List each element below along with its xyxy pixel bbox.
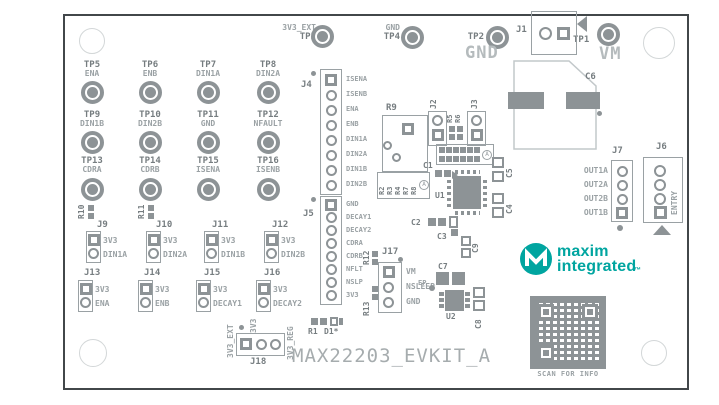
header-pin-square [432,129,444,141]
j1-pin-round [539,27,552,40]
j16-ref-label: J16 [264,269,280,278]
j11-ref-label: J11 [212,221,228,230]
j6-ref-label: J6 [656,143,667,152]
smd-pad [446,156,452,162]
header-pin-round [326,238,337,249]
jumper-net-label: DIN1B [221,251,245,259]
c3-ref-label: C3 [437,233,447,241]
gnd-net-text: GND [465,45,499,62]
u2-ic-body [445,290,464,311]
r11-ref-label: R11 [138,199,146,219]
c1-pad [435,170,442,177]
header-pin-round [326,277,337,288]
j14-ref-label: J14 [144,269,160,278]
c2-pad [428,218,436,226]
jumper-net-label: 3V3 [95,286,109,294]
qr-finder [538,304,554,320]
maxim-logo-icon [519,242,553,276]
tp13-group: TP13 CDRA [68,157,116,205]
header-pin-round [326,180,337,191]
jumper-net-label: 3V3 [213,286,227,294]
testpoint-pad [257,81,280,104]
c6-pad [508,92,544,109]
r5-ref-label: R5 [447,106,454,123]
c9-pad [461,236,471,246]
r9-ref-label: R9 [386,104,397,113]
qr-finder [582,304,598,320]
tp-net-label: NFAULT [244,120,292,128]
smd-pad [467,147,473,153]
c4-pad [492,207,504,218]
tp14-group: TP14 CDRB [126,157,174,205]
jumper-net-label: DIN1A [103,251,127,259]
jumper-pin-square [198,283,210,295]
tp3-net-label: 3V3_EXT [266,24,316,32]
header-pin-round [326,225,337,236]
pin-label: ENA [346,106,359,113]
header-pin-round [326,290,337,301]
jumper-pin-square [258,283,270,295]
r12-pad [372,251,378,257]
jumper-pin-square [206,234,218,246]
tp2-ref-label: TP2 [436,33,484,42]
connector-pin-round [654,179,666,191]
r5-pad [449,126,455,132]
smd-pad [460,147,466,153]
smd-pad [474,147,480,153]
header-pin-round [326,264,337,275]
j18-3v3-label: 3V3 [250,307,258,333]
pin-label: DIN2A [346,151,367,158]
pin1-dot-icon [311,197,316,202]
testpoint-pad [401,26,424,49]
pin-label: 3V3 [346,292,359,299]
testpoint-pad [257,131,280,154]
testpoint-pad [311,25,334,48]
pin-label: GND [346,201,359,208]
jumper-net-label: DIN2B [281,251,305,259]
r10-pad [88,205,94,211]
c7-pad [452,272,465,285]
pin-label: OUT1B [566,209,608,217]
c7-pad [436,272,449,285]
c5-pad [492,157,504,168]
pin-label: OUT2A [566,181,608,189]
mounting-hole [643,27,675,59]
j9-ref-label: J9 [97,221,108,230]
smd-pad [439,147,445,153]
pin-label: NFLT [346,266,363,273]
pin-label: OUT1A [566,167,608,175]
jumper-net-label: ENA [95,300,109,308]
jumper-net-label: 3V3 [103,237,117,245]
r1-ref-label: R1 [308,328,318,336]
testpoint-pad [81,178,104,201]
c8-pad [473,300,485,311]
header-pin-round [432,115,443,126]
r11-pad [148,213,154,219]
header-pin-round [617,180,628,191]
j17-ref-label: J17 [382,248,398,257]
tp7-group: TP7 DIN1A [184,61,232,108]
u1-pins [455,211,480,215]
header-pin-round [326,135,337,146]
jumper-pin-square [140,283,152,295]
header-pin-round [326,90,337,101]
header-pin-round [617,166,628,177]
jumper-pin-round [140,297,151,308]
j6-entry-label: ENTRY [671,165,679,215]
mounting-hole [79,339,107,367]
r13-ref-label: R13 [363,296,371,316]
pin-label: DIN1B [346,166,367,173]
jumper-net-label: 3V3 [163,237,177,245]
u1-ref-label: U1 [435,192,445,200]
j5-ref-label: J5 [303,210,314,219]
smd-pad [467,156,473,162]
jumper-pin-square [80,283,92,295]
header-pin-square [616,207,628,219]
c8-ref-label: C8 [475,313,483,329]
j15-ref-label: J15 [204,269,220,278]
header-pin-round [326,251,337,262]
jumper-net-label: DIN2A [163,251,187,259]
r8-ref-label: R8 [411,175,418,195]
ep-label: EP [418,280,426,287]
jumper-pin-round [88,248,99,259]
header-pin-square [325,199,337,211]
tp3-ref-label: TP3 [266,33,316,42]
connector-pin-round [654,193,666,205]
r12-ref-label: R12 [363,245,371,265]
d1-ref-label: D1* [324,328,338,336]
j3-ref-label: J3 [471,93,479,109]
c1-ref-label: C1 [423,162,433,170]
header-pin-round [256,339,267,350]
header-pin-round [383,297,394,308]
testpoint-pad [81,131,104,154]
header-pin-square [325,74,337,86]
j1-ref-label: J1 [516,26,527,35]
pin1-dot-icon [617,225,623,231]
pin-label: OUT2B [566,195,608,203]
tp-net-label: GND [184,120,232,128]
mounting-hole [641,340,667,366]
u1-pins [483,178,487,207]
tp-net-label: CDRB [126,166,174,174]
testpoint-pad [197,178,220,201]
j4-ref-label: J4 [301,81,312,90]
jumper-pin-round [198,297,209,308]
connector-pin-square [654,206,667,219]
c9-ref-label: C9 [472,237,480,253]
smd-pad [460,156,466,162]
header-pin-square [383,266,395,278]
pcb-screenshot: 3V3_EXT TP3 GND TP4 TP2 GND TP1 VM J1 C6… [0,0,719,405]
smd-pad [453,147,459,153]
u2-pin [439,292,444,296]
testpoint-pad [139,81,162,104]
pin-label: NSLP [346,279,363,286]
tp-net-label: DIN2B [126,120,174,128]
header-pin-round [326,105,337,116]
c5-ref-label: C5 [506,160,514,178]
r9-pin-square [402,123,414,135]
testpoint-pad [139,178,162,201]
jumper-pin-round [206,248,217,259]
testpoint-pad [597,23,620,46]
tp5-group: TP5 ENA [68,61,116,108]
c3-pad [451,229,458,236]
tp9-group: TP9 DIN1B [68,111,116,158]
ep-dot-icon [429,285,435,291]
j13-ref-label: J13 [84,269,100,278]
jumper-pin-square [148,234,160,246]
assembly-mark-a: A [419,180,429,190]
c8-pad [473,287,485,298]
jumper-net-label: DECAY2 [273,300,302,308]
pin-label: CDRA [346,240,363,247]
u1-pins [455,170,480,174]
jumper-pin-round [266,248,277,259]
c4-pad [492,193,504,204]
r10-ref-label: R10 [78,199,86,219]
c2-pad [438,218,446,226]
tp12-group: TP12 NFAULT [244,111,292,158]
header-pin-square [240,338,252,350]
tp10-group: TP10 DIN2B [126,111,174,158]
tp-net-label: ENB [126,70,174,78]
tp4-net-label: GND [350,24,400,32]
assembly-mark-a: A [482,150,492,160]
polarity-dot-icon [597,111,602,116]
pin-label: VM [406,268,416,276]
r3-ref-label: R3 [387,175,394,195]
jumper-net-label: 3V3 [281,237,295,245]
r4-ref-label: R4 [395,175,402,195]
u2-pin [465,298,470,302]
pin1-dot-icon [239,325,244,330]
j18-3v3ext-label: 3V3_EXT [227,308,235,358]
u2-ref-label: U2 [446,313,456,321]
r6-ref-label: R6 [455,106,462,123]
pin-label: ISENA [346,76,367,83]
c6-ref-label: C6 [585,73,596,82]
pin-label: DIN2B [346,181,367,188]
board-title: MAX22203_EVKIT_A [292,347,491,366]
j1-connector [531,11,577,55]
jumper-pin-round [258,297,269,308]
pin-label: CDRB [346,253,363,260]
pin-label: DIN1A [346,136,367,143]
c7-ref-label: C7 [438,263,448,271]
c3-pad [449,216,458,228]
pin-label: ENB [346,121,359,128]
pin-label: DECAY2 [346,227,371,234]
r5-pad [449,134,455,140]
c9-pad [461,248,471,258]
header-pin-round [617,194,628,205]
testpoint-pad [197,81,220,104]
r9-pin-round [392,153,401,162]
pin-label: GND [406,298,420,306]
jumper-pin-square [88,234,100,246]
jumper-net-label: ENB [155,300,169,308]
u1-ic-body [453,176,481,209]
testpoint-pad [139,131,162,154]
pin1-dot-icon [311,71,316,76]
tp6-group: TP6 ENB [126,61,174,108]
tp-net-label: DIN1B [68,120,116,128]
pin1-triangle-icon [653,225,671,235]
r6-pad [457,134,463,140]
r11-pad [148,205,154,211]
u2-pin [439,298,444,302]
u1-pins [447,178,451,207]
d1-pad [330,317,338,326]
logo-trademark: ™ [634,267,641,274]
j1-pin-square [557,27,570,40]
tp-net-label: ISENA [184,166,232,174]
c4-ref-label: C4 [506,196,514,214]
tp-net-label: DIN2A [244,70,292,78]
jumper-pin-square [266,234,278,246]
header-pin-round [326,165,337,176]
u2-pin [465,292,470,296]
r9-pin-round [383,141,392,150]
header-pin-round [326,212,337,223]
pin-label: DECAY1 [346,214,371,221]
pin-label: ISENB [346,91,367,98]
header-pin-round [270,339,281,350]
j7-ref-label: J7 [612,147,623,156]
r7-ref-label: R7 [403,175,410,195]
tp-net-label: ISENB [244,166,292,174]
j2-ref-label: J2 [430,93,438,109]
j18-ref-label: J18 [250,358,266,367]
tp16-group: TP16 ISENB [244,157,292,205]
u2-pin [465,304,470,308]
testpoint-pad [81,81,104,104]
smd-pad [453,156,459,162]
jumper-net-label: DECAY1 [213,300,242,308]
r1-pad [320,318,327,325]
qr-code [530,296,606,369]
u2-pin [439,304,444,308]
tp-net-label: CDRA [68,166,116,174]
jumper-net-label: 3V3 [155,286,169,294]
jumper-pin-round [148,248,159,259]
smd-pad [474,156,480,162]
header-pin-round [326,150,337,161]
header-pin-round [383,282,394,293]
header-pin-square [471,129,483,141]
logo-word-integrated: integrated [557,259,636,275]
testpoint-pad [257,178,280,201]
qr-finder [538,345,554,361]
connector-pin-round [654,165,666,177]
tp-net-label: ENA [68,70,116,78]
jumper-pin-round [80,297,91,308]
jumper-net-label: 3V3 [273,286,287,294]
tp8-group: TP8 DIN2A [244,61,292,108]
j10-ref-label: J10 [156,221,172,230]
c5-pad [492,171,504,182]
smd-pad [439,156,445,162]
vm-net-text: VM [599,46,621,63]
r1-pad [311,318,318,325]
c6-pad [566,92,600,109]
tp15-group: TP15 ISENA [184,157,232,205]
header-j4 [320,69,342,195]
header-pin-round [326,120,337,131]
tp4-ref-label: TP4 [350,33,400,42]
qr-caption: SCAN FOR INFO [530,371,606,378]
r10-pad [88,213,94,219]
pin1-triangle-icon [577,16,587,32]
tp-net-label: DIN1A [184,70,232,78]
j12-ref-label: J12 [272,221,288,230]
c1-pad [444,170,451,177]
r6-pad [457,126,463,132]
c2-ref-label: C2 [411,219,421,227]
header-pin-round [471,115,482,126]
mounting-hole [79,28,105,54]
tp11-group: TP11 GND [184,111,232,158]
d1-pad [339,318,343,325]
r2-ref-label: R2 [379,175,386,195]
jumper-net-label: 3V3 [221,237,235,245]
testpoint-pad [197,131,220,154]
smd-pad [446,147,452,153]
